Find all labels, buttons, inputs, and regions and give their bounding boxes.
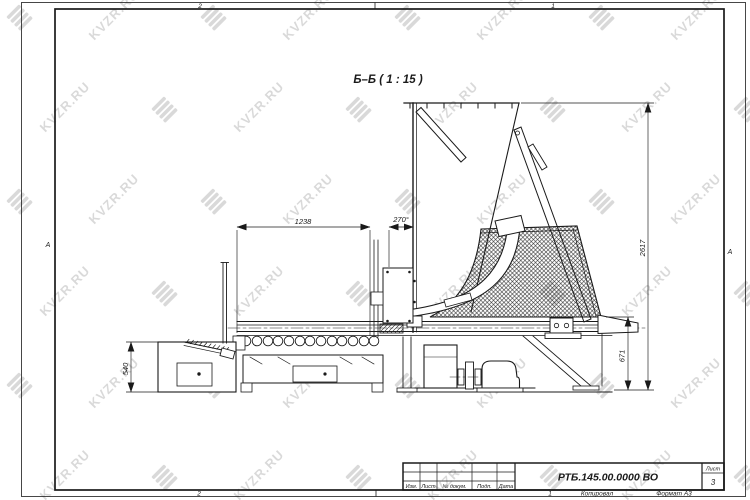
tb-sheet-number: 3 bbox=[711, 478, 716, 487]
coupling-disc bbox=[466, 362, 474, 389]
drawing-sheet: KVZR.RUKVZR.RUKVZR.RUKVZR.RUKVZR.RUKVZR.… bbox=[0, 0, 750, 500]
zone-label-bottom-left: 2 bbox=[196, 491, 201, 498]
tb-col-list: Лист bbox=[420, 484, 436, 490]
tb-col-data: Дата bbox=[498, 484, 514, 490]
drive-pulley-section bbox=[380, 324, 403, 333]
view-title: Б–Б ( 1 : 15 ) bbox=[353, 74, 423, 86]
dim-label-540: 540 bbox=[121, 362, 130, 375]
dim-label-2617: 2617 bbox=[638, 239, 647, 258]
tb-copied-label: Копировал bbox=[581, 491, 614, 498]
zone-label-bottom-right: 1 bbox=[548, 491, 552, 498]
engineering-drawing-svg: KVZR.RUKVZR.RUKVZR.RUKVZR.RUKVZR.RUKVZR.… bbox=[0, 0, 750, 500]
electric-motor bbox=[482, 361, 520, 388]
strut-pin bbox=[516, 131, 520, 135]
bearing-plate bbox=[545, 333, 581, 339]
zone-label-top-left: 2 bbox=[197, 3, 202, 10]
tb-format-label: Формат А3 bbox=[656, 491, 692, 498]
tb-col-dokum: № докум. bbox=[442, 484, 466, 490]
zone-label-top-right: 1 bbox=[551, 3, 555, 10]
dim-label-1238: 1238 bbox=[295, 217, 313, 226]
tb-col-izm: Изм. bbox=[406, 484, 418, 490]
tb-doc-number: РТБ.145.00.0000 ВО bbox=[558, 472, 658, 484]
motor-base bbox=[477, 388, 523, 392]
zone-label-right: А bbox=[727, 249, 733, 256]
tb-sheet-label: Лист bbox=[705, 467, 721, 473]
zone-label-left: А bbox=[45, 242, 51, 249]
bearing-block bbox=[550, 318, 573, 333]
dim-label-270: 270° bbox=[392, 215, 409, 224]
tb-col-podp: Подп. bbox=[477, 484, 492, 490]
dim-label-671: 671 bbox=[618, 350, 627, 363]
frame-foot-left bbox=[241, 383, 252, 392]
gearbox bbox=[424, 345, 457, 388]
frame-foot-right bbox=[372, 383, 383, 392]
